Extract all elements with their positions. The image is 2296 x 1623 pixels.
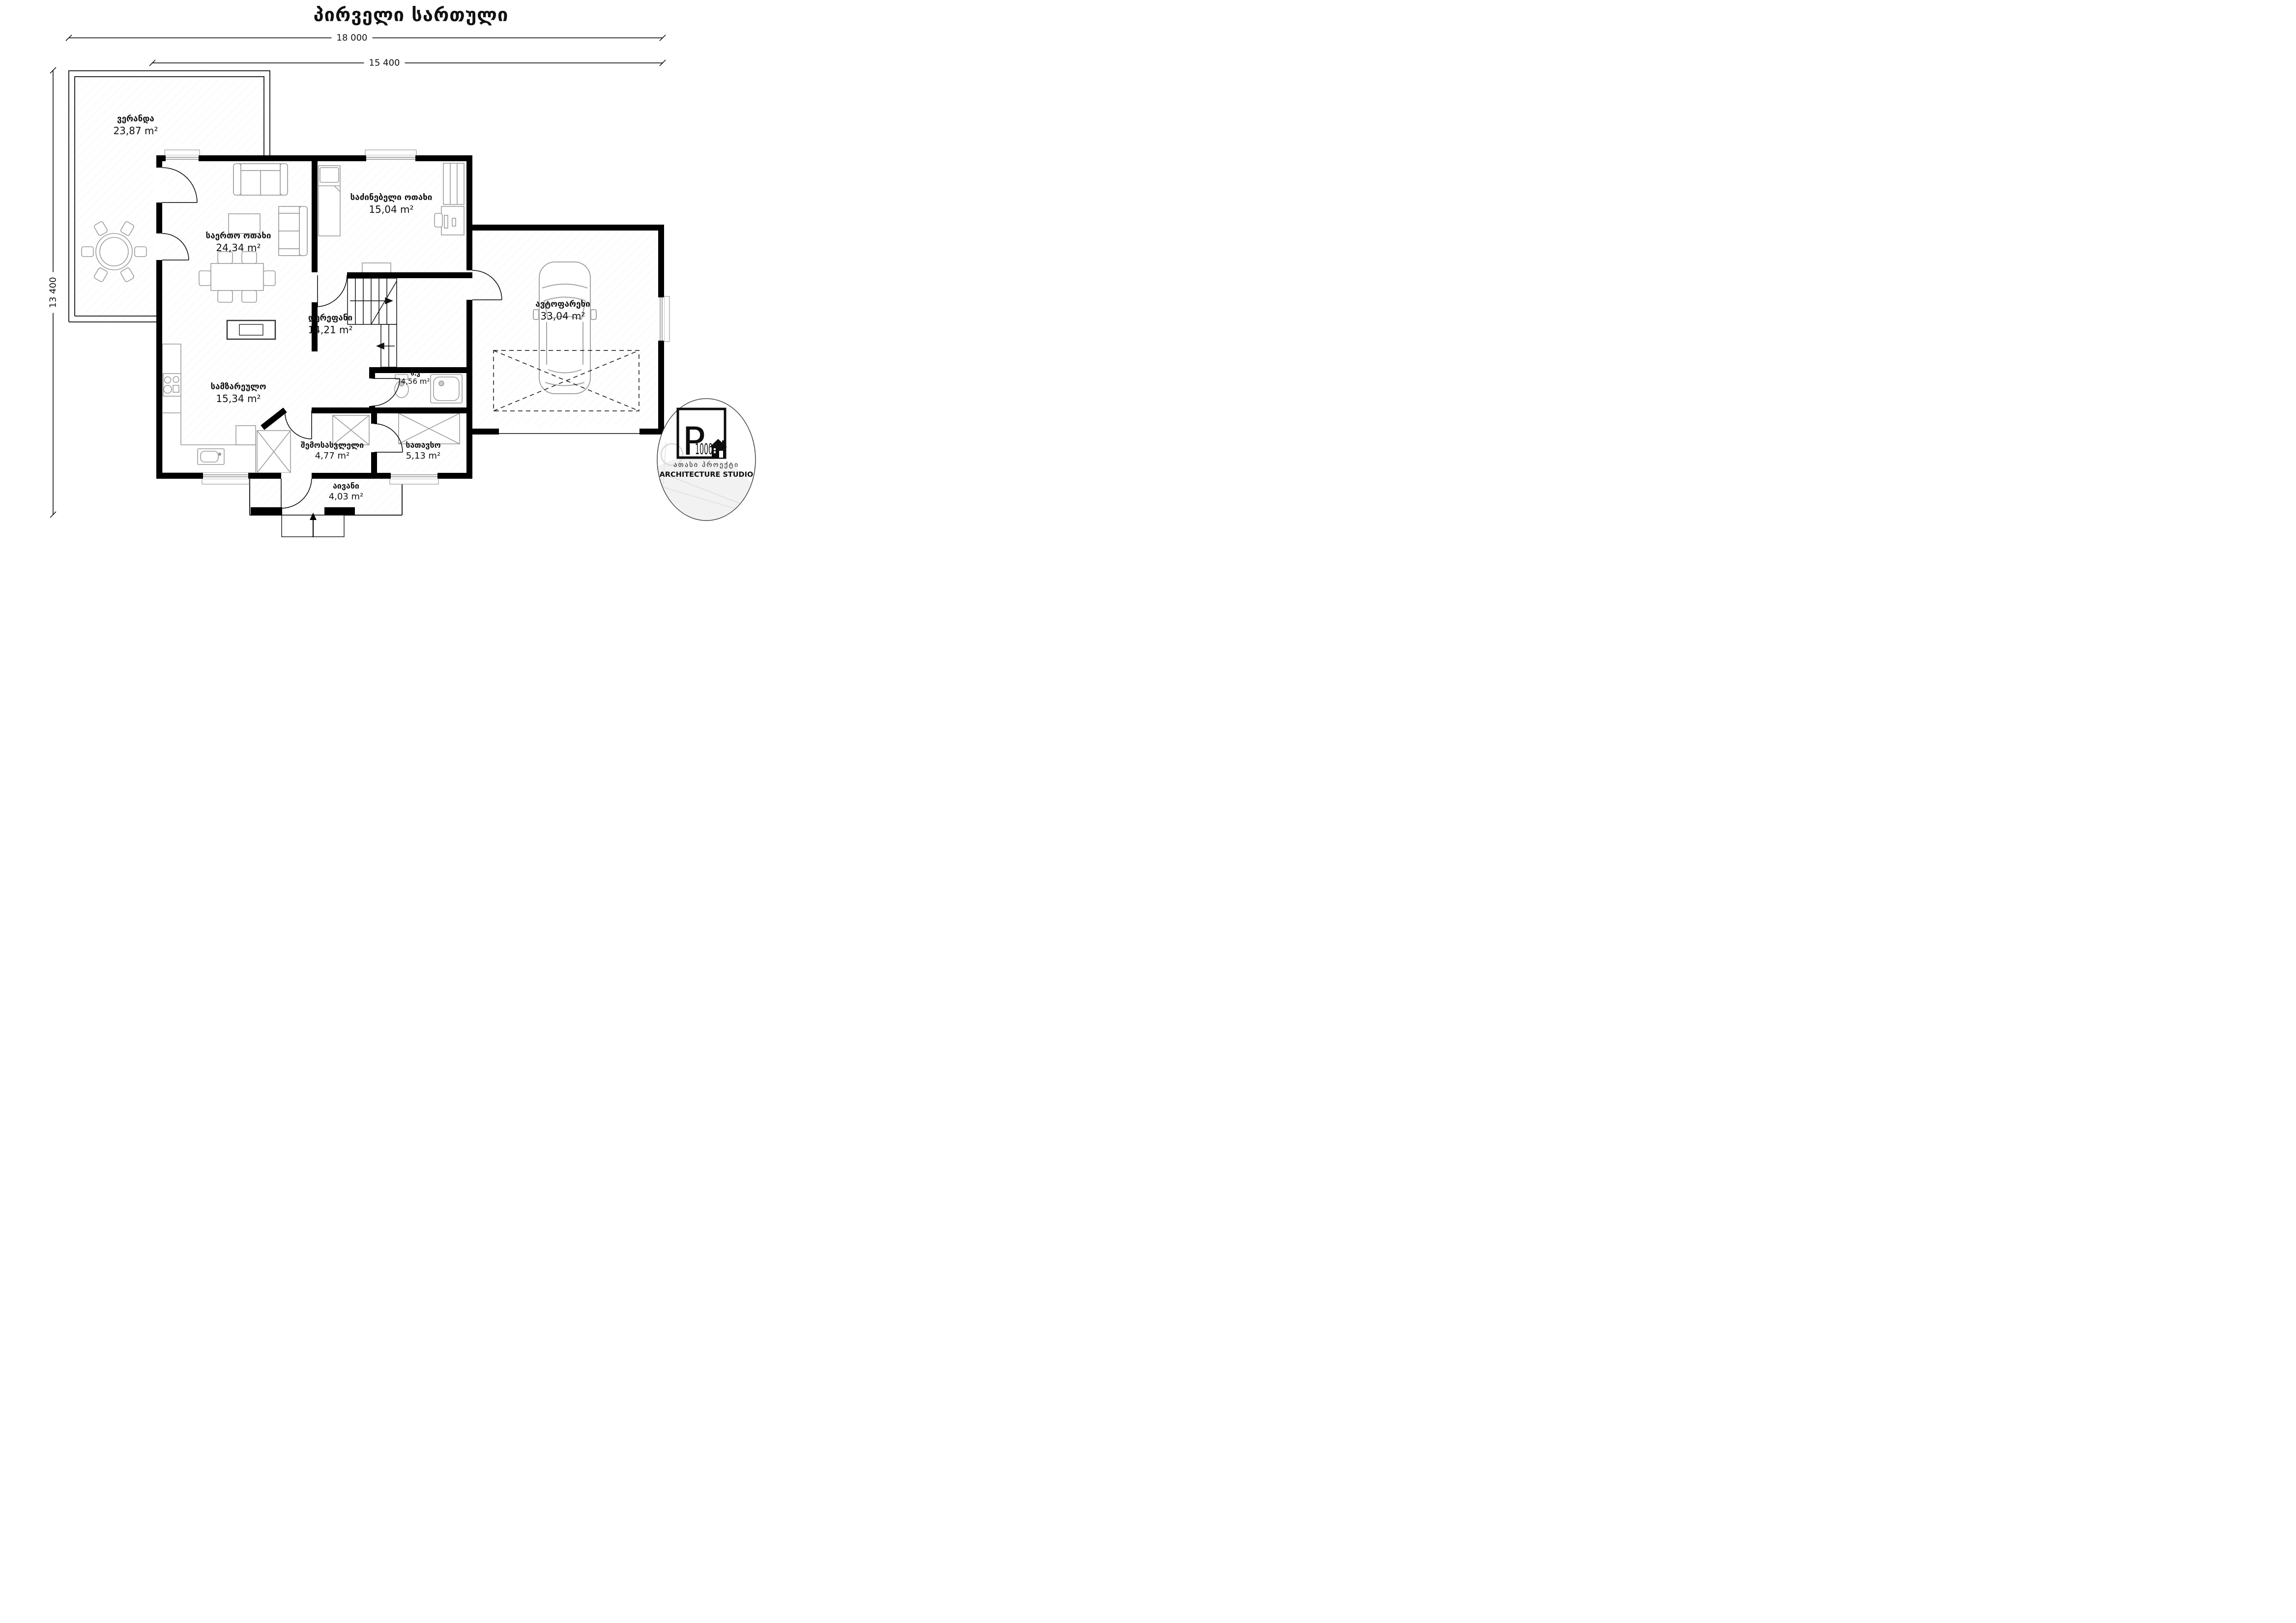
logo-subtitle-georgian: ათასი პროექტი [673,461,739,469]
room-name: შემოსასვლელი [301,440,364,451]
stove-icon [163,374,181,396]
wardrobe-icon [443,163,464,204]
window-symbol [390,473,438,484]
room-label-entrance: შემოსასვლელი 4,77 m² [301,440,364,462]
room-area: 4,77 m² [301,451,364,462]
loveseat-icon [279,206,307,256]
room-label-garage: ავტოფარეხი 33,04 m² [535,299,590,322]
room-area: 15,04 m² [350,203,433,216]
floor-plan: P 1000 ათასი პროექტი ARCHITECTURE STUDIO… [0,0,765,541]
room-label-corridor: დერეფანი 14,21 m² [308,313,352,336]
room-area: 5,13 m² [406,451,440,462]
window-symbol [202,473,249,484]
dimension-line-top-inner [149,60,666,66]
sofa-icon [233,164,288,195]
room-name: სათავსო [406,440,440,451]
bed-icon [319,166,340,236]
car-icon [533,262,596,394]
room-name: სამზარეულო [210,381,266,393]
logo-number: 1000 [695,441,713,458]
door-opening [281,473,312,479]
room-area: 4,56 m² [401,378,430,386]
dimension-label-top-outer: 18 000 [332,33,373,43]
room-name: აივანი [329,481,364,492]
room-label-balcony: აივანი 4,03 m² [329,481,364,502]
shower-icon [431,375,462,403]
room-area: 33,04 m² [535,310,590,322]
room-name: ავტოფარეხი [535,299,590,310]
sink-icon [198,449,224,464]
page-title: პირველი სართული [314,4,509,26]
window-symbol [365,150,416,161]
garage-door-opening [499,429,639,435]
room-name: ვერანდა [113,114,158,125]
room-label-living-room: საერთო ოთახი 24,34 m² [206,231,271,254]
room-label-veranda: ვერანდა 23,87 m² [113,114,158,137]
room-area: 23,87 m² [113,125,158,137]
room-name: ს.კ [401,371,430,377]
room-area: 24,34 m² [206,242,271,254]
dimension-label-top-inner: 15 400 [364,58,405,68]
room-name: საერთო ოთახი [206,231,271,242]
room-label-bedroom: საძინებელი ოთახი 15,04 m² [350,192,433,216]
floor-plan-drawing: P 1000 ათასი პროექტი ARCHITECTURE STUDIO [0,0,765,541]
room-label-bathroom: ს.კ 4,56 m² [401,371,430,386]
room-name: საძინებელი ოთახი [350,192,433,203]
room-name: დერეფანი [308,313,352,324]
room-label-kitchen: სამზარეულო 15,34 m² [210,381,266,405]
logo-subtitle-english: ARCHITECTURE STUDIO [660,471,754,479]
window-symbol [658,296,669,342]
room-area: 14,21 m² [308,324,352,336]
room-label-storage: სათავსო 5,13 m² [406,440,440,462]
window-symbol [165,150,200,161]
dimension-label-left: 13 400 [48,272,58,313]
room-area: 15,34 m² [210,393,266,405]
tv-unit-icon [227,320,275,339]
room-area: 4,03 m² [329,492,364,503]
